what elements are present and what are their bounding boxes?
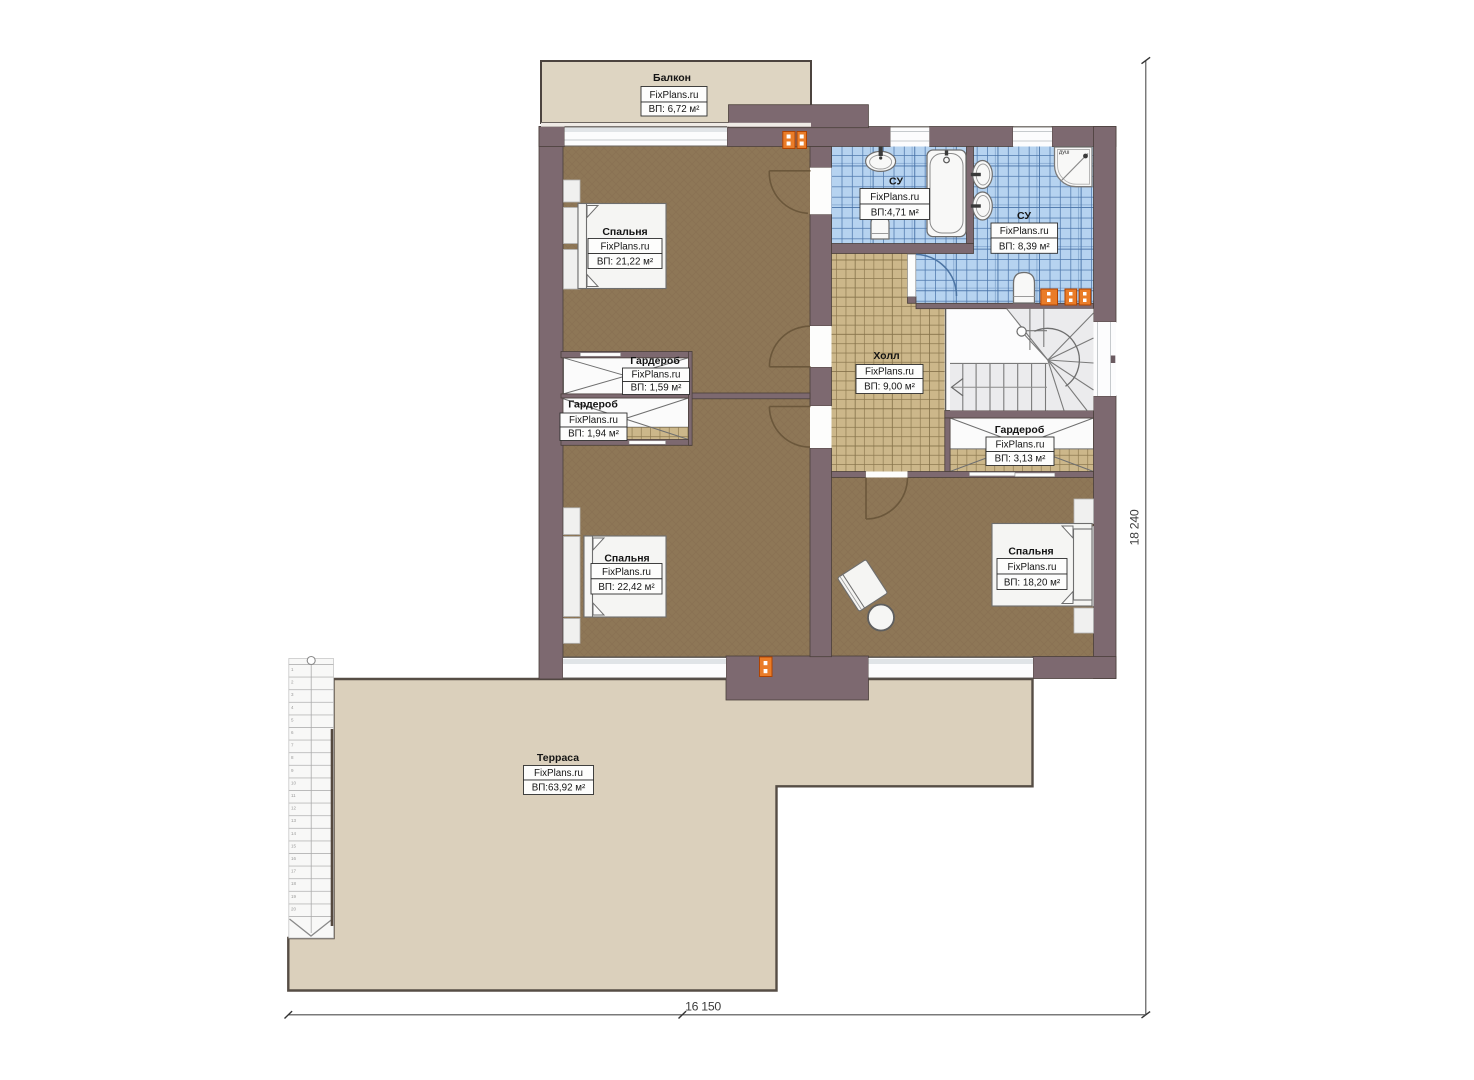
svg-text:12: 12 [291, 806, 297, 811]
svg-text:ВП: 18,20 м²: ВП: 18,20 м² [1004, 578, 1061, 589]
svg-text:ВП: 21,22 м²: ВП: 21,22 м² [597, 257, 654, 268]
svg-text:Балкон: Балкон [653, 72, 691, 84]
svg-text:СУ: СУ [1017, 210, 1031, 222]
svg-text:18 240: 18 240 [1128, 509, 1142, 545]
svg-text:FixPlans.ru: FixPlans.ru [870, 192, 919, 203]
svg-text:Терраса: Терраса [537, 752, 579, 764]
svg-text:20: 20 [291, 906, 297, 911]
svg-text:Гардероб: Гардероб [568, 399, 618, 411]
svg-text:Холл: Холл [873, 350, 899, 362]
svg-text:ВП: 22,42 м²: ВП: 22,42 м² [598, 582, 655, 593]
svg-text:Спальня: Спальня [1008, 546, 1053, 558]
svg-text:Спальня: Спальня [604, 553, 649, 565]
svg-text:Гардероб: Гардероб [995, 424, 1045, 436]
svg-text:FixPlans.ru: FixPlans.ru [650, 90, 699, 101]
svg-text:FixPlans.ru: FixPlans.ru [996, 440, 1045, 451]
svg-text:10: 10 [291, 780, 297, 785]
svg-text:ВП: 8,39 м²: ВП: 8,39 м² [999, 241, 1051, 252]
svg-text:15: 15 [291, 843, 297, 848]
svg-text:ВП: 3,13 м²: ВП: 3,13 м² [995, 454, 1047, 465]
svg-text:14: 14 [291, 831, 297, 836]
svg-text:Гардероб: Гардероб [630, 355, 680, 367]
svg-text:ВП:4,71 м²: ВП:4,71 м² [871, 208, 920, 219]
svg-text:ВП: 1,94 м²: ВП: 1,94 м² [568, 429, 620, 440]
svg-text:FixPlans.ru: FixPlans.ru [602, 567, 651, 578]
svg-text:18: 18 [291, 881, 297, 886]
svg-text:FixPlans.ru: FixPlans.ru [601, 242, 650, 253]
svg-text:Спальня: Спальня [602, 226, 647, 238]
svg-text:FixPlans.ru: FixPlans.ru [534, 768, 583, 779]
svg-text:FixPlans.ru: FixPlans.ru [569, 415, 618, 426]
svg-text:FixPlans.ru: FixPlans.ru [865, 367, 914, 378]
svg-text:ВП:63,92 м²: ВП:63,92 м² [532, 783, 586, 794]
svg-text:16: 16 [291, 856, 297, 861]
svg-text:СУ: СУ [889, 176, 903, 188]
svg-text:FixPlans.ru: FixPlans.ru [1008, 562, 1057, 573]
svg-text:17: 17 [291, 869, 297, 874]
svg-text:ВП: 1,59 м²: ВП: 1,59 м² [631, 383, 683, 394]
svg-text:FixPlans.ru: FixPlans.ru [1000, 226, 1049, 237]
svg-text:ВП: 6,72 м²: ВП: 6,72 м² [649, 104, 701, 115]
svg-text:FixPlans.ru: FixPlans.ru [632, 370, 681, 381]
svg-text:11: 11 [291, 793, 296, 798]
svg-text:душ: душ [1059, 150, 1070, 156]
svg-text:19: 19 [291, 894, 297, 899]
svg-text:16 150: 16 150 [685, 1000, 721, 1014]
svg-text:ВП: 9,00 м²: ВП: 9,00 м² [864, 382, 916, 393]
svg-text:13: 13 [291, 818, 297, 823]
